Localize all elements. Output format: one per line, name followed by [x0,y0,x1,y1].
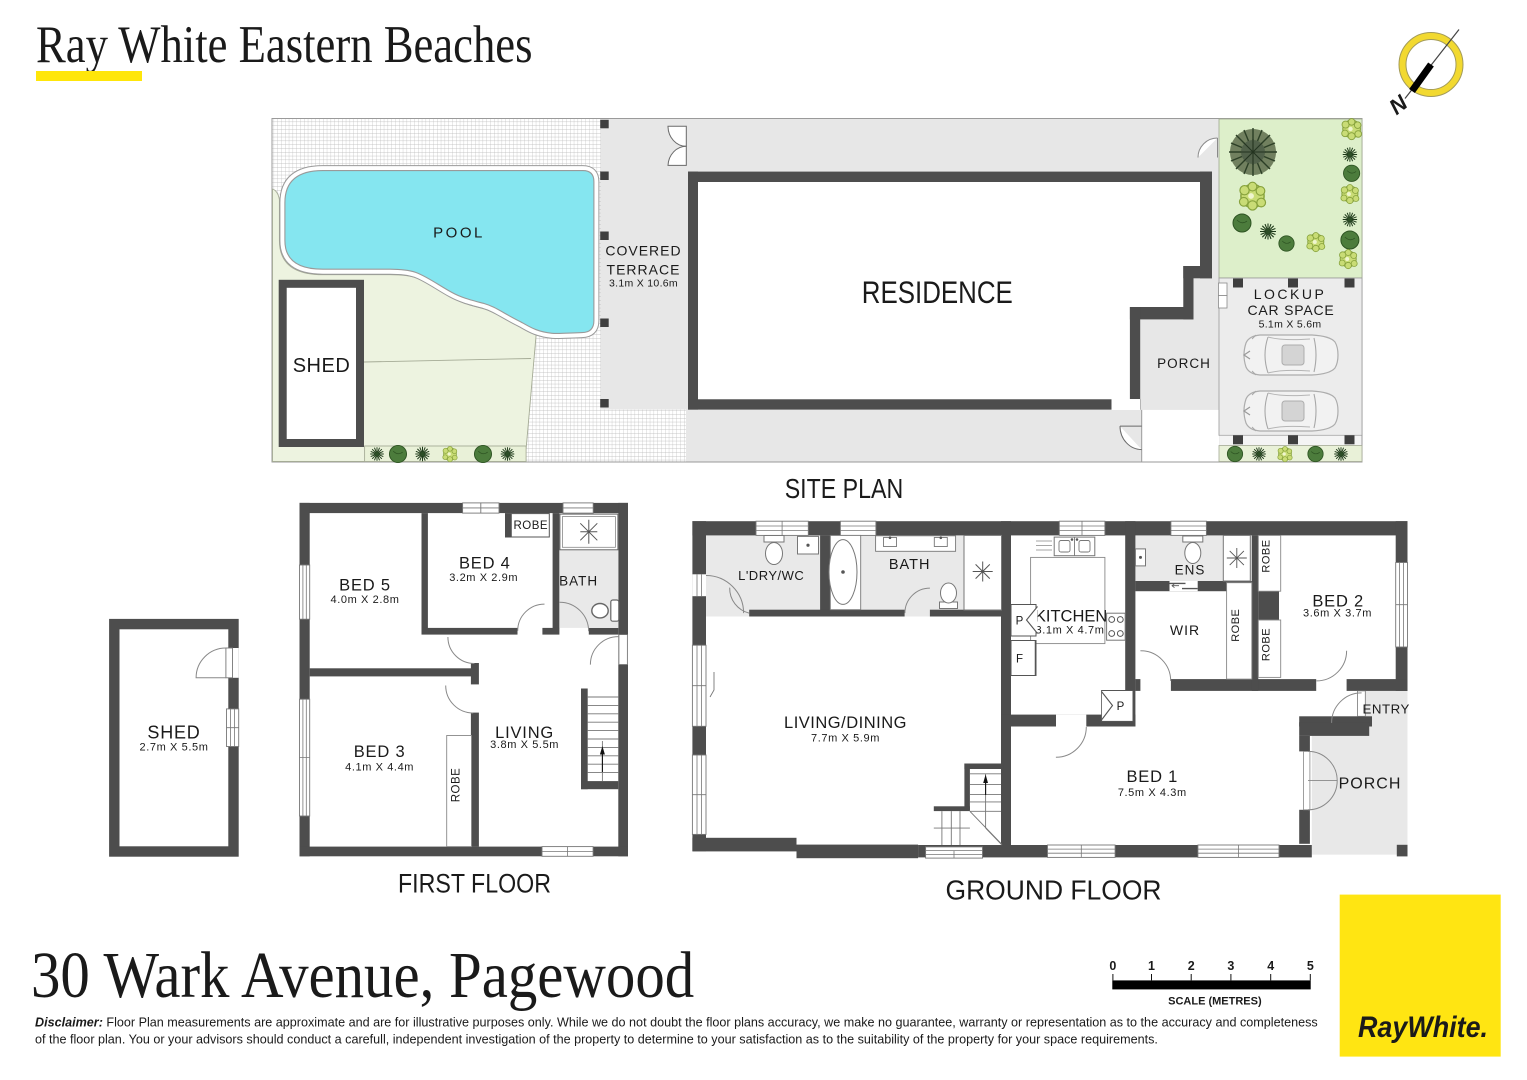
svg-text:3.1m X 4.7m: 3.1m X 4.7m [1036,625,1105,637]
svg-text:ENS: ENS [1175,562,1206,577]
svg-text:SHED: SHED [147,723,200,743]
svg-text:SHED: SHED [293,355,351,377]
svg-text:0: 0 [1109,959,1116,973]
svg-text:LOCKUP: LOCKUP [1254,286,1327,302]
svg-text:COVERED: COVERED [605,243,681,259]
svg-text:Disclaimer: Floor Plan measure: Disclaimer: Floor Plan measurements are … [35,1016,1318,1030]
svg-text:7.7m X 5.9m: 7.7m X 5.9m [811,733,880,745]
svg-text:TERRACE: TERRACE [607,261,681,277]
svg-text:PORCH: PORCH [1339,775,1402,792]
svg-text:BED 3: BED 3 [354,743,406,761]
svg-text:BATH: BATH [559,573,598,588]
svg-text:4.1m X 4.4m: 4.1m X 4.4m [345,762,414,774]
svg-text:P: P [1117,701,1125,713]
svg-text:BED 5: BED 5 [339,576,391,594]
svg-text:PORCH: PORCH [1157,356,1211,371]
svg-text:5: 5 [1307,959,1314,973]
svg-text:Ray White Eastern Beaches: Ray White Eastern Beaches [36,14,533,73]
svg-text:1: 1 [1148,959,1155,973]
svg-text:30 Wark Avenue, Pagewood: 30 Wark Avenue, Pagewood [31,938,694,1012]
svg-text:3.6m X 3.7m: 3.6m X 3.7m [1303,608,1372,620]
svg-text:L'DRY/WC: L'DRY/WC [738,568,804,583]
svg-text:3: 3 [1227,959,1234,973]
svg-text:ROBE: ROBE [1261,539,1273,572]
svg-text:SITE PLAN: SITE PLAN [785,473,904,504]
svg-text:WIR: WIR [1170,622,1200,638]
svg-text:POOL: POOL [433,225,485,242]
svg-text:ENTRY: ENTRY [1363,702,1410,717]
svg-text:RayWhite.: RayWhite. [1358,1011,1488,1044]
svg-text:BED 4: BED 4 [459,555,511,573]
svg-text:CAR SPACE: CAR SPACE [1247,302,1334,318]
svg-text:SCALE (METRES): SCALE (METRES) [1168,996,1262,1008]
svg-text:7.5m X 4.3m: 7.5m X 4.3m [1118,787,1187,799]
svg-text:2.7m X 5.5m: 2.7m X 5.5m [140,742,209,754]
svg-text:4.0m X 2.8m: 4.0m X 2.8m [331,594,400,606]
svg-text:5.1m X 5.6m: 5.1m X 5.6m [1259,319,1322,331]
svg-text:ROBE: ROBE [451,768,463,803]
svg-text:3.1m X 10.6m: 3.1m X 10.6m [609,277,678,289]
svg-text:ROBE: ROBE [1230,609,1242,642]
svg-text:4: 4 [1267,959,1274,973]
svg-text:RESIDENCE: RESIDENCE [862,274,1013,310]
svg-text:P: P [1016,616,1024,628]
svg-text:3.8m X 5.5m: 3.8m X 5.5m [490,739,559,751]
svg-text:LIVING/DINING: LIVING/DINING [784,714,907,732]
svg-text:2: 2 [1188,959,1195,973]
svg-text:FIRST FLOOR: FIRST FLOOR [398,869,551,899]
svg-text:F: F [1016,654,1023,666]
svg-text:of the floor plan. You or y: of the floor plan. You or your advisors … [35,1033,1158,1047]
svg-text:ROBE: ROBE [1261,628,1273,661]
svg-text:GROUND FLOOR: GROUND FLOOR [946,875,1162,906]
svg-text:ROBE: ROBE [514,520,549,532]
svg-text:BED 1: BED 1 [1126,768,1178,786]
svg-text:KITCHEN: KITCHEN [1035,608,1107,626]
svg-text:BATH: BATH [889,557,931,573]
svg-text:3.2m X 2.9m: 3.2m X 2.9m [449,572,518,584]
